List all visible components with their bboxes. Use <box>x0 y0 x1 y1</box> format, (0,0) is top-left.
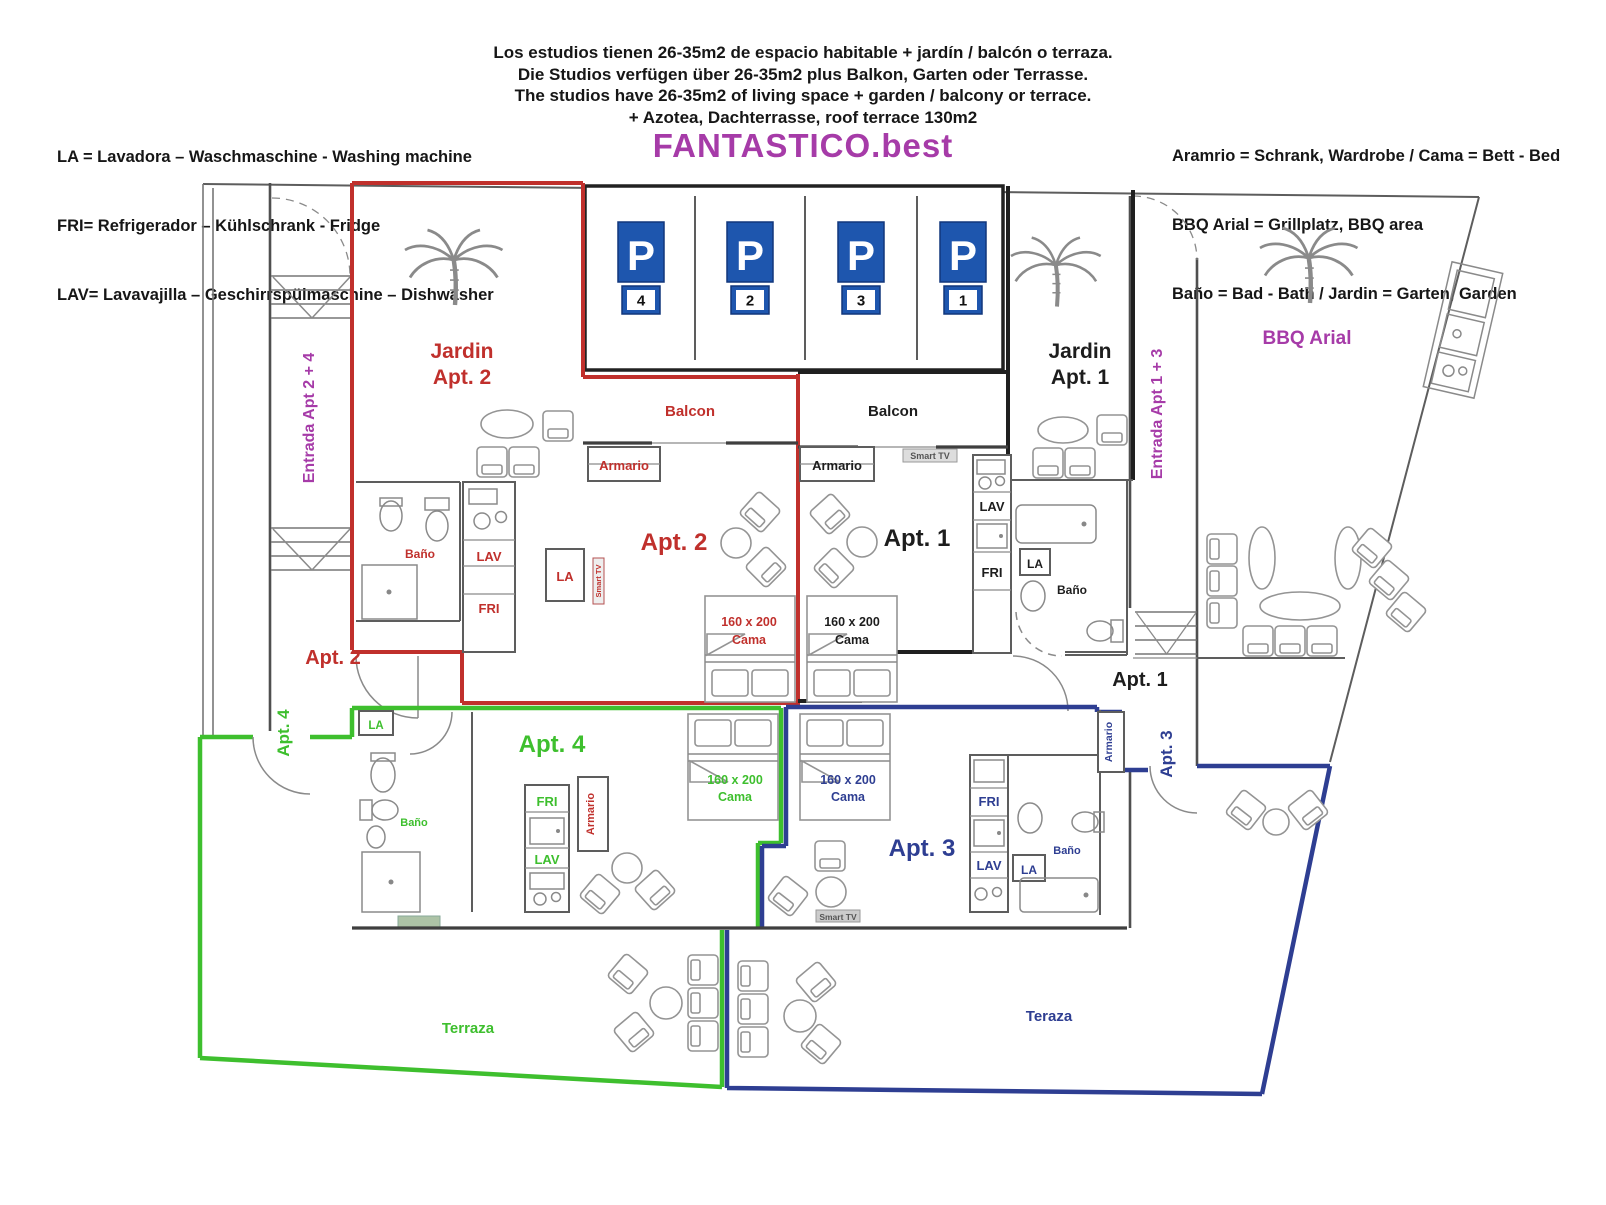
apt4: Apt. 4 LA Baño FRI LAV Armario <box>200 708 781 1087</box>
apt2-table <box>721 528 751 558</box>
terraza-apt4-label: Terraza <box>442 1020 495 1037</box>
palm-tree-icon <box>1011 238 1101 307</box>
apt4-toilet <box>360 800 372 820</box>
apt3-bed-word: Cama <box>831 790 866 804</box>
apt3-la-label: LA <box>1021 863 1037 877</box>
floorplan-page: LA = Lavadora – Waschmaschine - Washing … <box>0 0 1606 1205</box>
apt4-table <box>612 853 642 883</box>
apt4-lav-label: LAV <box>534 852 559 867</box>
jardin-apt1-label: Jardin <box>1048 340 1111 363</box>
teraza-apt3-label: Teraza <box>1026 1008 1073 1025</box>
apt1-fri-label: FRI <box>982 565 1003 580</box>
garden-table <box>1038 417 1088 443</box>
jardin-apt2-label2: Apt. 2 <box>433 366 491 389</box>
corridor-entrada-1-3: Entrada Apt 1 + 3 <box>1130 196 1197 928</box>
apt3-bed-size: 160 x 200 <box>820 773 876 787</box>
apt2-door-label: Apt. 2 <box>305 647 361 669</box>
apt3-smarttv-label: Smart TV <box>819 912 857 922</box>
floorplan-drawing: Entrada Apt 2 + 4 P 4 P 2 P 3 P 1 <box>0 0 1606 1205</box>
apt2-fri-label: FRI <box>479 601 500 616</box>
apt4-sink <box>371 758 395 792</box>
parking-sign-2: P 2 <box>727 222 773 314</box>
jardin-apt2-label: Jardin <box>430 340 493 363</box>
parking-sign-3: P 3 <box>838 222 884 314</box>
apt3-name-label: Apt. 3 <box>889 835 956 862</box>
apt2-la-label: LA <box>556 569 574 584</box>
apt3-table <box>816 877 846 907</box>
apt1-balcon-label: Balcon <box>868 403 918 420</box>
apt4-fri-label: FRI <box>537 794 558 809</box>
apt3-fri-label: FRI <box>979 794 1000 809</box>
jardin-apt1-label2: Apt. 1 <box>1051 366 1110 389</box>
parking-sign-4: P 4 <box>618 222 664 314</box>
apt4-bed-word: Cama <box>718 790 753 804</box>
apt2-lav-label: LAV <box>476 549 501 564</box>
apt1-bed-size: 160 x 200 <box>824 615 880 629</box>
apt1-entry-door <box>1013 656 1068 711</box>
apt2-smarttv-label: Smart TV <box>594 565 603 598</box>
apt1-table <box>847 527 877 557</box>
garden-table <box>481 410 533 438</box>
parking-number: 1 <box>959 293 967 310</box>
parking-number: 3 <box>857 293 865 310</box>
apt1-name-label: Apt. 1 <box>884 525 951 552</box>
parking-area: P 4 P 2 P 3 P 1 <box>585 186 1003 370</box>
jardin-apt2: Jardin Apt. 2 <box>405 230 573 477</box>
apt4-bed-size: 160 x 200 <box>707 773 763 787</box>
apt3-sink <box>1018 803 1042 833</box>
apt3-armario-label: Armario <box>1103 722 1115 762</box>
jardin-apt1: Jardin Apt. 1 <box>1011 238 1127 478</box>
apt1-bed-word: Cama <box>835 633 870 647</box>
bbq-area: BBQ Arial <box>1197 228 1503 658</box>
apt3-lav-label: LAV <box>976 858 1001 873</box>
apt1-sink <box>1021 581 1045 611</box>
palm-tree-icon <box>405 230 503 305</box>
apt4-armario-label: Armario <box>585 793 597 835</box>
parking-number: 4 <box>637 293 646 310</box>
apt2-bed-word: Cama <box>732 633 767 647</box>
parking-p-icon: P <box>949 232 977 279</box>
apt3-kitchen <box>970 755 1008 912</box>
bbq-kitchen-unit <box>1423 262 1502 398</box>
entrada-1-3-label: Entrada Apt 1 + 3 <box>1149 349 1166 480</box>
apt2-bed-size: 160 x 200 <box>721 615 777 629</box>
parking-p-icon: P <box>627 232 655 279</box>
apt3-bed <box>800 714 890 820</box>
apt4-la-label: LA <box>368 720 383 732</box>
bbq-table <box>1260 592 1340 620</box>
apt1-armario-label: Armario <box>812 458 862 473</box>
apt1-bath-door <box>1016 612 1062 656</box>
apt4-door-label: Apt. 4 <box>274 709 293 757</box>
apt2-balcon-label: Balcon <box>665 403 715 420</box>
apt2-armario-label: Armario <box>599 458 649 473</box>
apt1-bed <box>807 596 897 702</box>
apt2-toilet <box>425 498 449 510</box>
apt3-door-label: Apt. 3 <box>1157 730 1176 777</box>
entrada-2-4-label: Entrada Apt 2 + 4 <box>301 353 318 484</box>
apt1-toilet <box>1087 621 1113 641</box>
apt1-la-label: LA <box>1027 557 1043 571</box>
apt4-bano-label: Baño <box>400 817 428 829</box>
apt3: Apt. 3 160 x 200 Cama FRI LAV LA Baño <box>727 707 1330 1094</box>
apt4-name-label: Apt. 4 <box>519 731 586 758</box>
apt4-bed <box>688 714 778 820</box>
apt1-smarttv-label: Smart TV <box>910 451 950 461</box>
apt2-name-label: Apt. 2 <box>641 529 708 556</box>
parking-p-icon: P <box>736 232 764 279</box>
bbq-label: BBQ Arial <box>1262 328 1351 349</box>
parking-p-icon: P <box>847 232 875 279</box>
parking-number: 2 <box>746 293 754 310</box>
apt4-tv-wall <box>398 916 440 927</box>
parking-sign-1: P 1 <box>940 222 986 314</box>
apt1-bano-label: Baño <box>1057 583 1087 597</box>
apt2-bano-label: Baño <box>405 547 435 561</box>
palm-tree-icon <box>1260 228 1358 303</box>
apt1-lav-label: LAV <box>979 499 1004 514</box>
apt3-bano-label: Baño <box>1053 845 1081 857</box>
apt2-kitchen <box>463 482 515 652</box>
apt2-bed <box>705 596 795 702</box>
apt1-door-label: Apt. 1 <box>1112 669 1168 691</box>
